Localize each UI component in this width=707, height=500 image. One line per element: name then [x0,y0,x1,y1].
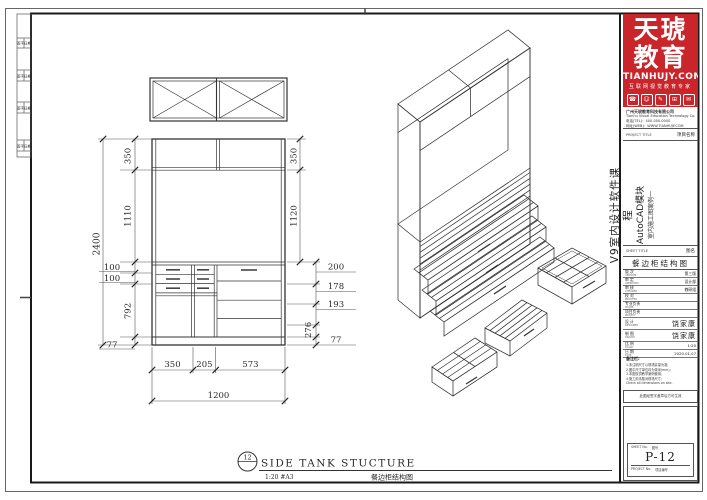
dim-total-height: 2400 [93,232,103,255]
sheet-linework: 签字日期 签字日期 签字日期 签字日期 [0,0,707,500]
sheet-number: P-12 [631,450,690,466]
dim-bottom-205: 205 [196,360,212,370]
view-title-cn: 餐边柜结构图 [371,473,413,482]
person-icon: ☺ [641,94,653,106]
isometric-view [398,30,606,396]
title-block-rows: 版 次VERSION 第三版 审 定APPROVED 设计部 审 核CHECKE… [623,270,698,358]
notes-title: 备注栏: [626,356,695,362]
svg-text:日期: 日期 [24,106,31,111]
project-no-label-cn: 项目编号 [655,467,668,472]
stamp-note-box: 此图经签字盖章后方可生效 [623,390,698,403]
dimension-labels: 2400 350 1110 100 100 792 77 350 1120 20… [93,148,345,401]
dim-bottom-350: 350 [164,360,180,370]
phone-icon: ☎ [627,94,639,106]
company-info: 广州天琥教育科技有限公司 Tianhu Visual Education Tec… [623,108,698,129]
brand-website: TIANHUJY.COM [623,72,698,82]
view-title: SIDE TANK STUCTURE [261,458,416,470]
drawing-sheet: 签字日期 签字日期 签字日期 签字日期 [0,0,707,500]
project-title-label-en: PROJECT TITLE [626,133,652,137]
svg-text:日期: 日期 [24,144,31,149]
dim-right-77: 77 [331,336,342,346]
sheet-number-area: SHEET No. 图号 P-12 PROJECT No. 项目编号 [623,406,698,481]
view-scale: 1:20 #A3 [265,474,294,481]
front-elevation [152,139,285,345]
project-title-header: PROJECT TITLE 项目名称 [623,129,698,141]
brand-name-line2: 教育 [623,45,698,70]
dim-right-200: 200 [328,263,344,273]
sheet-borders [6,9,703,492]
project-no-label-en: PROJECT No. [631,467,651,472]
svg-text:日期: 日期 [24,41,31,46]
sheet-title-label-cn: 图名 [686,248,695,254]
dim-right-1120: 1120 [290,205,300,227]
dim-right-276: 276 [304,322,314,338]
title-column: 天琥 教育 TIANHUJY.COM 互联网视觉教育专家 ☎ ☺ ✎ ⊞ ✉ 广… [623,0,698,500]
dim-left-350: 350 [124,148,134,164]
dim-left-1110: 1110 [124,205,134,227]
binding-strip-labels: 签字日期 签字日期 签字日期 签字日期 [17,41,31,149]
dim-left-100a: 100 [104,263,120,273]
project-title-area: V9室内设计软件课程 AutoCAD模块 室内施工图案例一 [623,141,698,245]
svg-text:日期: 日期 [24,74,31,79]
dim-left-77: 77 [107,341,118,351]
pen-icon: ✎ [655,94,667,106]
mail-icon: ✉ [683,94,695,106]
brand-tagline: 互联网视觉教育专家 [623,83,698,90]
table-row-drawn: 制 图DRAWN 饶家康 [623,330,698,342]
brand-name-line1: 天琥 [623,17,698,42]
table-row-designer: 设 计DESIGNED 饶家康 [623,318,698,330]
table-row-scale: 比 例SCALE 1:20 [623,342,698,350]
dimension-lines [98,136,356,404]
dim-right-178: 178 [328,282,344,292]
plan-view [150,78,287,121]
project-title-label-cn: 项目名称 [677,132,695,138]
dim-bottom-1200: 1200 [208,391,230,401]
note-line: Check all dimensions on site. [626,381,695,386]
callout-number: 12 [243,454,251,462]
notes-block: 备注栏: 1.未注明尺寸以现场实量为准; 2.图中尺寸单位均为毫米(mm); 3… [623,355,698,388]
dim-right-193: 193 [328,300,344,310]
sheet-title-label-en: SHEET TITLE [626,249,648,253]
brand-social-icons: ☎ ☺ ✎ ⊞ ✉ [623,93,698,107]
sheet-number-box: SHEET No. 图号 P-12 PROJECT No. 项目编号 [627,443,694,477]
sheet-title: 餐边柜结构图 [623,257,698,270]
dim-bottom-573: 573 [242,360,258,370]
dim-left-100b: 100 [104,274,120,284]
dim-left-792: 792 [124,303,134,319]
dim-right-350: 350 [290,148,300,164]
binding-strip [17,14,31,157]
table-row: 项目负责PROJECT [623,310,698,318]
view-title-group: 12 SIDE TANK STUCTURE 1:20 #A3 餐边柜结构图 [243,454,415,482]
sheet-title-header: SHEET TITLE 图名 [623,245,698,257]
brand-logo: 天琥 教育 TIANHUJY.COM 互联网视觉教育专家 [623,14,698,93]
grid-icon: ⊞ [669,94,681,106]
